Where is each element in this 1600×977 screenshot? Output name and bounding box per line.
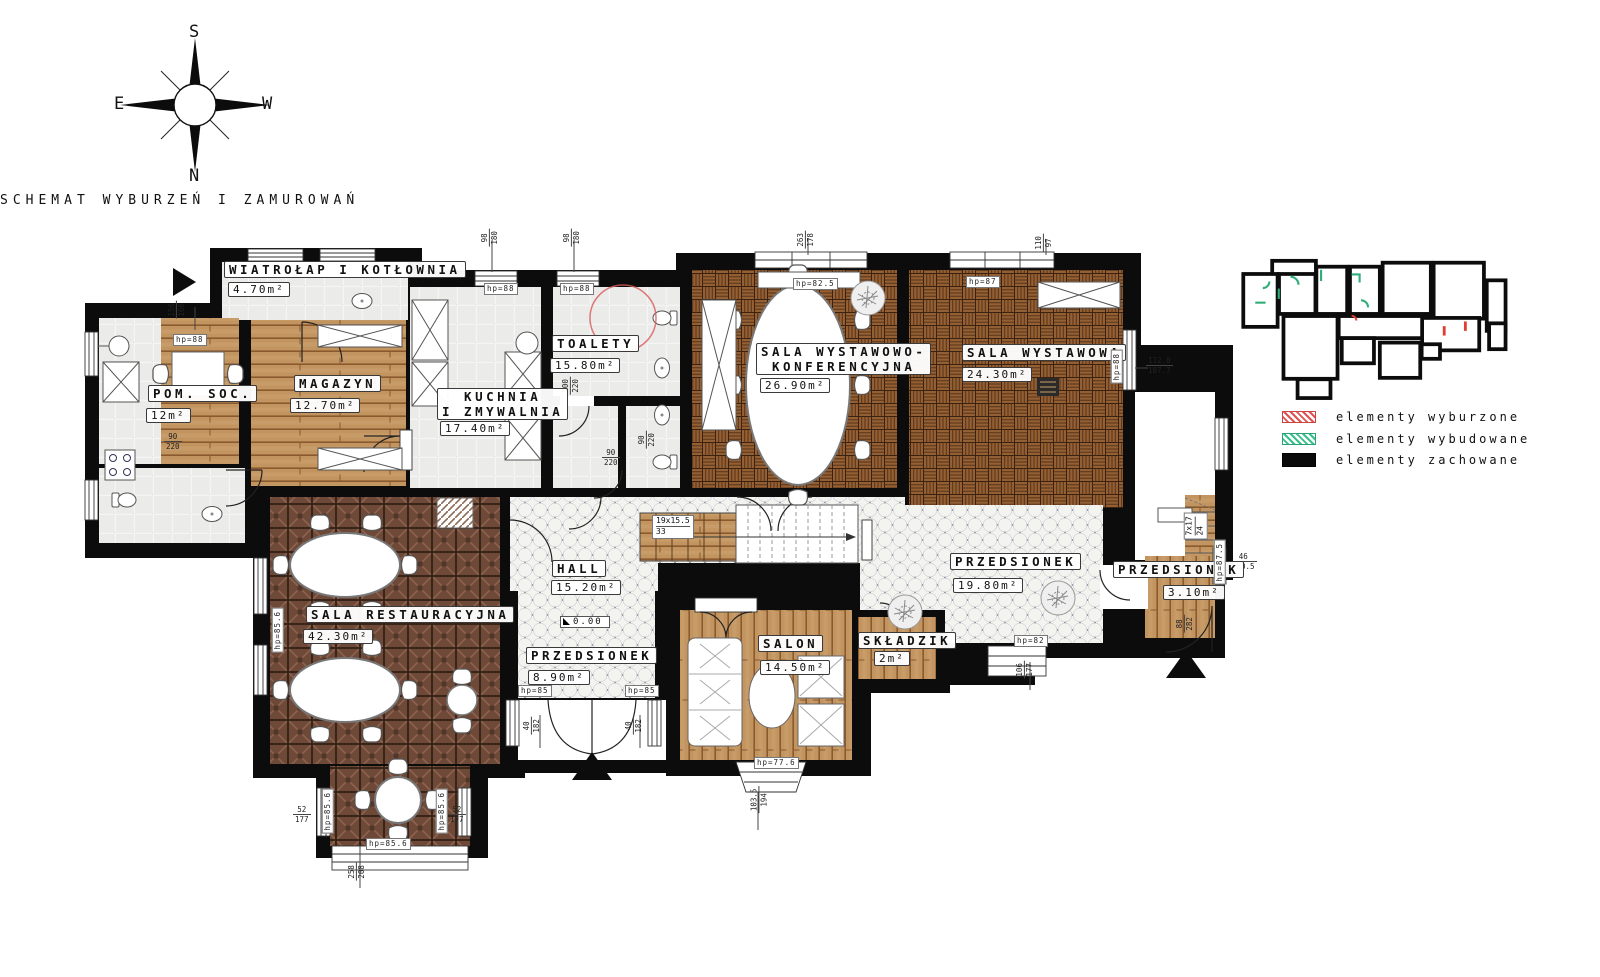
dimension: 90220 — [164, 432, 182, 452]
legend-label: elementy zachowane — [1336, 453, 1520, 467]
compass-south-label: S — [189, 22, 199, 42]
room-name-kuchnia: KUCHNIA I ZMYWALNIA — [437, 388, 568, 420]
legend-item-built: elementy wybudowane — [1282, 432, 1530, 446]
dim-bottom: 220 — [647, 431, 656, 449]
hp-label: hp=88 — [173, 334, 207, 346]
hp-label: hp=85.6 — [322, 789, 334, 834]
dimension: 88282 — [1175, 615, 1195, 633]
dim-bottom: 178 — [806, 231, 815, 249]
dimension: 52177 — [448, 805, 466, 825]
compass-rose — [120, 38, 270, 172]
stair-label-main: 19x15.533 — [652, 515, 694, 539]
dim-bottom: 220 — [164, 442, 182, 451]
dim-top: 52 — [293, 805, 311, 815]
hp-label: hp=88 — [1111, 350, 1123, 384]
dimension: 90220 — [602, 448, 620, 468]
legend-label: elementy wyburzone — [1336, 410, 1520, 424]
room-name-skladzik: SKŁADZIK — [858, 632, 956, 649]
dim-bottom: 97 — [1044, 234, 1053, 252]
level-marker: 0.00 — [560, 616, 610, 628]
dim-bottom: 282 — [1185, 615, 1194, 633]
dim-bottom: 180 — [572, 229, 581, 247]
dimension: 103.5194 — [749, 787, 769, 814]
room-area-sala-wyst-konf: 26.90m² — [760, 378, 830, 393]
legend-swatch-demolished — [1282, 411, 1316, 423]
hp-label: hp=85 — [625, 685, 659, 697]
hp-label: hp=88 — [484, 283, 518, 295]
room-name-pom-soc: POM. SOC. — [148, 385, 257, 402]
legend-swatch-preserved — [1282, 453, 1316, 467]
dim-bottom: 177 — [1025, 661, 1034, 679]
hp-label: hp=85 — [518, 685, 552, 697]
dim-bottom: 208 — [357, 863, 366, 881]
room-area-pom-soc: 12m² — [146, 408, 191, 423]
stair-label-side: 7x1724 — [1184, 512, 1208, 539]
dimension: 52177 — [293, 805, 311, 825]
room-name-przedsionek-890: PRZEDSIONEK — [526, 647, 657, 664]
dimension: 90220 — [637, 431, 657, 449]
dim-top: 103.5 — [749, 787, 759, 814]
dimension: 258208 — [347, 863, 367, 881]
dimension: 98180 — [480, 229, 500, 247]
room-name-przedsionek-1980: PRZEDSIONEK — [950, 553, 1081, 570]
hp-label: hp=87.5 — [1214, 540, 1226, 585]
legend-label: elementy wybudowane — [1336, 432, 1530, 446]
dim-top: 90 — [164, 432, 182, 442]
dim-top: 112.8 — [1146, 356, 1173, 366]
hp-label: hp=85.6 — [272, 608, 284, 653]
compass-north-label: N — [189, 166, 199, 186]
hp-label: hp=82 — [1014, 635, 1048, 647]
dimension: 11097 — [1034, 234, 1054, 252]
stair-dim: 7x17 — [1185, 516, 1196, 535]
dim-bottom: 177 — [293, 815, 311, 824]
room-area-hall: 15.20m² — [551, 580, 621, 595]
room-area-wiatrolap: 4.70m² — [228, 282, 290, 297]
room-area-sala-wystawowa: 24.30m² — [962, 367, 1032, 382]
dim-bottom: 180 — [490, 229, 499, 247]
mini-schematic — [1243, 261, 1505, 398]
dim-top: 258 — [347, 863, 357, 881]
room-area-przedsionek-310: 3.10m² — [1163, 585, 1225, 600]
hp-label: hp=77.6 — [754, 757, 799, 769]
room-area-salon: 14.50m² — [760, 660, 830, 675]
dimension: 263178 — [796, 231, 816, 249]
dim-bottom: 220 — [571, 377, 580, 395]
dimension: 106177 — [1015, 661, 1035, 679]
room-area-magazyn: 12.70m² — [290, 398, 360, 413]
legend-swatch-built — [1282, 433, 1316, 445]
dim-bottom: 194 — [760, 787, 769, 814]
stair-dim: 19x15.5 — [656, 516, 690, 527]
hp-label: hp=82.5 — [793, 278, 838, 290]
room-name-magazyn: MAGAZYN — [294, 375, 381, 392]
dim-bottom: 182 — [634, 717, 643, 735]
floor-plan-page: S N E W SCHEMAT WYBURZEŃ I ZAMUROWAŃ ele… — [0, 0, 1600, 977]
room-name-salon: SALON — [758, 635, 823, 652]
schematic-title: SCHEMAT WYBURZEŃ I ZAMUROWAŃ — [0, 193, 254, 208]
dim-top: 40 — [624, 717, 634, 735]
room-area-skladzik: 2m² — [874, 651, 910, 666]
room-area-toalety: 15.80m² — [550, 358, 620, 373]
dim-top: 98 — [562, 229, 572, 247]
hp-label: hp=88 — [560, 283, 594, 295]
room-name-toalety: TOALETY — [552, 335, 639, 352]
room-name-sala-wyst-konf: SALA WYSTAWOWO- KONFERENCYJNA — [756, 343, 931, 375]
dim-top: 98 — [480, 229, 490, 247]
dimension: 156166 — [167, 301, 187, 319]
hp-label: hp=85.6 — [366, 838, 411, 850]
dim-top: 106 — [1015, 661, 1025, 679]
dim-top: 40 — [522, 717, 532, 735]
dim-bottom: 182 — [532, 717, 541, 735]
room-area-przedsionek-1980: 19.80m² — [953, 578, 1023, 593]
dim-bottom: 177 — [448, 815, 466, 824]
dim-bottom: 220 — [602, 458, 620, 467]
compass-east-label: E — [114, 94, 124, 114]
dim-top: 156 — [167, 301, 177, 319]
room-area-kuchnia: 17.40m² — [440, 421, 510, 436]
dimension: 98180 — [562, 229, 582, 247]
hp-label: hp=85.6 — [436, 789, 448, 834]
dim-top: 52 — [448, 805, 466, 815]
hp-label: hp=87 — [966, 276, 1000, 288]
dim-top: 90 — [602, 448, 620, 458]
legend-item-demolished: elementy wyburzone — [1282, 410, 1520, 424]
room-name-sala-wystawowa: SALA WYSTAWOWA — [962, 344, 1126, 361]
dimension: 112.8187.7 — [1146, 356, 1173, 376]
dim-top: 110 — [1034, 234, 1044, 252]
dim-top: 90 — [637, 431, 647, 449]
legend-item-preserved: elementy zachowane — [1282, 453, 1520, 467]
floor-plan-drawing — [0, 0, 1600, 977]
dim-bottom: 187.7 — [1146, 366, 1173, 375]
compass-west-label: W — [262, 94, 272, 114]
room-name-hall: HALL — [552, 560, 606, 577]
room-name-wiatrolap: WIATROŁAP I KOTŁOWNIA — [224, 261, 466, 278]
dim-top: 263 — [796, 231, 806, 249]
dim-top: 88 — [1175, 615, 1185, 633]
stair-count: 24 — [1196, 516, 1206, 535]
stair-count: 33 — [656, 527, 690, 537]
room-name-sala-restauracyjna: SALA RESTAURACYJNA — [306, 606, 514, 623]
room-area-sala-restauracyjna: 42.30m² — [303, 629, 373, 644]
dimension: 40182 — [624, 717, 644, 735]
room-area-przedsionek-890: 8.90m² — [528, 670, 590, 685]
dimension: 40182 — [522, 717, 542, 735]
dim-bottom: 166 — [177, 301, 186, 319]
